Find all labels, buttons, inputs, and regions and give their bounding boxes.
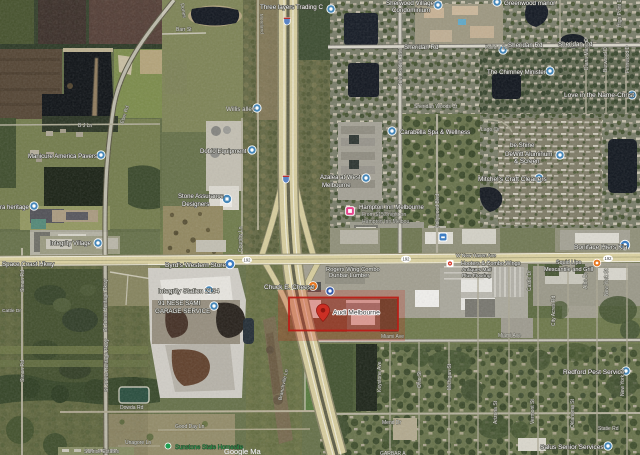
svg-text:Hampton Inn Melbou: Hampton Inn Melbou [362, 219, 409, 225]
svg-text:Dowda Rd: Dowda Rd [120, 405, 144, 411]
svg-text:Sunrise Estates: Sunrise Estates [84, 449, 120, 455]
svg-text:Audi Melbourne: Audi Melbourne [333, 310, 380, 317]
svg-text:Boniface Hiers Kia: Boniface Hiers Kia [574, 244, 628, 251]
svg-text:New York St: New York St [620, 368, 626, 396]
svg-text:Cattle Dr: Cattle Dr [2, 308, 21, 314]
svg-text:New York St: New York St [604, 268, 610, 296]
svg-text:W New Haven Ave: W New Haven Ave [456, 253, 496, 259]
svg-text:Sherwood Village: Sherwood Village [386, 0, 435, 7]
svg-text:The Chimney Minister: The Chimney Minister [487, 70, 546, 76]
svg-text:Castle Dr: Castle Dr [527, 270, 533, 291]
svg-text:From $157/night on: From $157/night on [362, 212, 406, 218]
svg-text:Hooters & Combo Wings: Hooters & Combo Wings [461, 261, 521, 267]
svg-text:Mescantile and Grill: Mescantile and Grill [544, 267, 593, 273]
svg-text:St Johns Heritage Pkwy: St Johns Heritage Pkwy [103, 278, 109, 332]
svg-text:Manicure America Pavers: Manicure America Pavers [28, 154, 97, 160]
svg-text:Condominium: Condominium [392, 7, 430, 14]
svg-text:Moreland: Moreland [258, 14, 265, 35]
svg-text:Carabella Spa & Wellness: Carabella Spa & Wellness [400, 130, 470, 136]
svg-text:Ohio St: Ohio St [417, 371, 423, 388]
svg-text:Unagore Ln: Unagore Ln [125, 440, 151, 446]
svg-text:Hampton Inn Melbourne: Hampton Inn Melbourne [359, 205, 425, 211]
svg-text:Greenwood manor: Greenwood manor [504, 0, 555, 7]
svg-text:Integrity Station 2134: Integrity Station 2134 [158, 288, 220, 295]
svg-text:be Shine: be Shine [510, 142, 535, 149]
svg-text:Dunbar Lumber: Dunbar Lumber [329, 273, 369, 279]
svg-text:Byrd's Western Store: Byrd's Western Store [165, 262, 226, 269]
svg-text:Redford Pest Service: Redford Pest Service [563, 369, 625, 376]
svg-text:B J Ln: B J Ln [78, 123, 92, 129]
svg-text:City Acres Rd: City Acres Rd [551, 295, 557, 326]
svg-text:Doblo Equipment: Doblo Equipment [200, 149, 247, 155]
svg-text:DeWitt Aluminum: DeWitt Aluminum [505, 151, 552, 158]
svg-text:Alba Dr: Alba Dr [583, 272, 589, 289]
svg-text:192: 192 [403, 256, 411, 261]
svg-text:Point o the: Point o the [485, 45, 509, 51]
svg-text:192: 192 [244, 257, 252, 262]
svg-text:ra heritage: ra heritage [0, 205, 30, 211]
svg-text:Diana Marie D: Diana Marie D [584, 38, 590, 70]
svg-text:Michigan St: Michigan St [447, 363, 453, 390]
svg-text:Designers: Designers [182, 202, 209, 208]
svg-text:Google Ma: Google Ma [224, 447, 262, 455]
svg-text:Burwood D: Burwood D [603, 47, 609, 72]
svg-text:Keystone Ave: Keystone Ave [377, 361, 383, 392]
svg-text:Azalea at West: Azalea at West [320, 175, 361, 181]
svg-text:Mend Dr: Mend Dr [382, 420, 402, 426]
svg-text:Simon Rd: Simon Rd [20, 360, 26, 382]
svg-text:Stone Assurance: Stone Assurance [178, 194, 224, 200]
svg-text:Space Coast Hkwy: Space Coast Hkwy [2, 261, 55, 268]
svg-text:Arizona St: Arizona St [493, 400, 499, 424]
svg-text:Barr St: Barr St [176, 27, 192, 33]
svg-text:Statie Rd: Statie Rd [598, 426, 619, 432]
svg-text:Chuck E. Cheese: Chuck E. Cheese [264, 284, 315, 291]
svg-text:High Point D: High Point D [617, 0, 623, 27]
svg-text:Mitchel's Craft Cleaners: Mitchel's Craft Cleaners [478, 176, 548, 183]
svg-text:Sheridan Rd: Sheridan Rd [508, 42, 543, 49]
svg-text:John Rodes Blvd: John Rodes Blvd [398, 48, 404, 86]
svg-text:Vermont St: Vermont St [530, 399, 536, 424]
svg-text:Three layers Trading C: Three layers Trading C [260, 4, 323, 11]
svg-text:Plus Flooring: Plus Flooring [462, 273, 491, 279]
svg-text:Simon Rd: Simon Rd [20, 270, 26, 292]
svg-text:GARBAR A: GARBAR A [380, 451, 406, 455]
svg-text:Fernwood D: Fernwood D [625, 45, 631, 73]
svg-text:& Screen: & Screen [514, 158, 540, 165]
svg-text:Sheridan Woods Ct: Sheridan Woods Ct [414, 104, 458, 110]
svg-text:Sheridan Rd: Sheridan Rd [404, 44, 439, 51]
svg-text:Miami Ave: Miami Ave [498, 333, 521, 339]
svg-text:Oklahoma St: Oklahoma St [570, 398, 576, 428]
svg-text:Melbourne: Melbourne [322, 183, 351, 189]
svg-text:Willis alley: Willis alley [226, 106, 256, 113]
svg-text:St Johns Heritage Pkwy: St Johns Heritage Pkwy [104, 338, 110, 392]
svg-text:GARAGE SERVICE: GARAGE SERVICE [155, 308, 210, 315]
svg-text:Integrity Village: Integrity Village [50, 241, 92, 247]
svg-text:Hollywood Blvd: Hollywood Blvd [435, 194, 441, 228]
svg-text:Good Day Ln: Good Day Ln [175, 424, 205, 430]
svg-text:91 NESE SAMI: 91 NESE SAMI [158, 300, 201, 307]
svg-text:Coursby Ln: Coursby Ln [238, 226, 244, 252]
svg-text:Love in the Name-Christ: Love in the Name-Christ [564, 92, 634, 99]
svg-text:Miami Ave: Miami Ave [381, 334, 404, 340]
svg-text:Squid Lips: Squid Lips [556, 260, 581, 266]
svg-text:Lago Cir: Lago Cir [481, 127, 500, 133]
svg-text:Salus Senior Services: Salus Senior Services [540, 444, 604, 451]
svg-text:Antiques Mall: Antiques Mall [462, 267, 491, 273]
svg-text:192: 192 [605, 256, 613, 261]
